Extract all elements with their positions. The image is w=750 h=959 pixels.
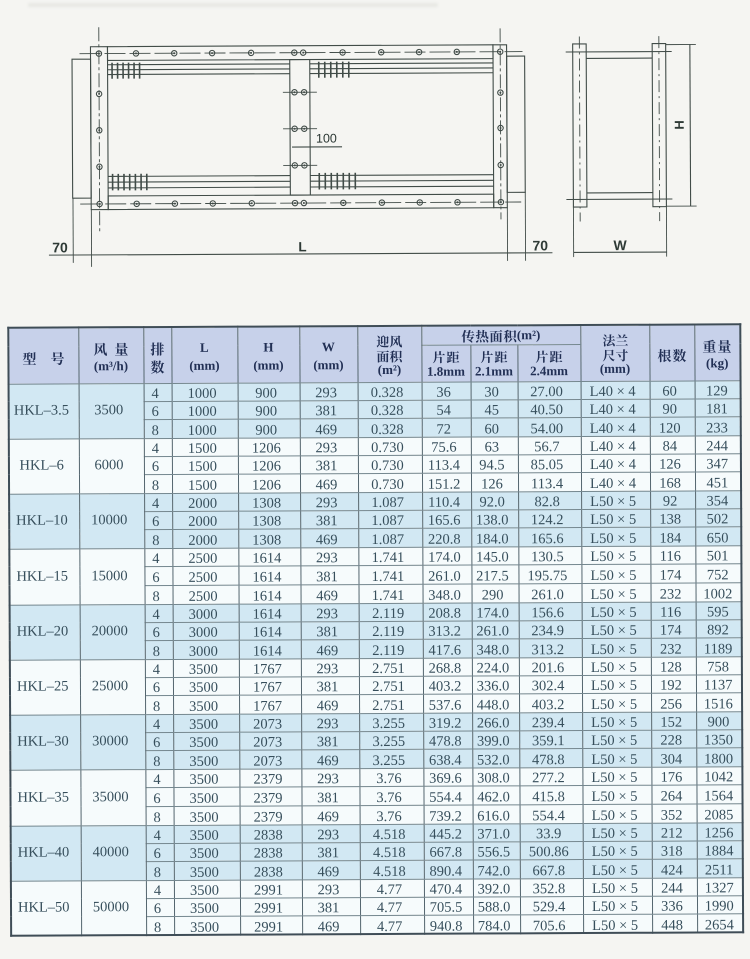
svg-text:L: L	[298, 239, 306, 254]
svg-text:100: 100	[316, 131, 337, 145]
svg-text:70: 70	[52, 239, 68, 255]
svg-text:70: 70	[532, 237, 548, 253]
svg-text:W: W	[613, 237, 627, 253]
svg-text:H: H	[672, 120, 687, 129]
